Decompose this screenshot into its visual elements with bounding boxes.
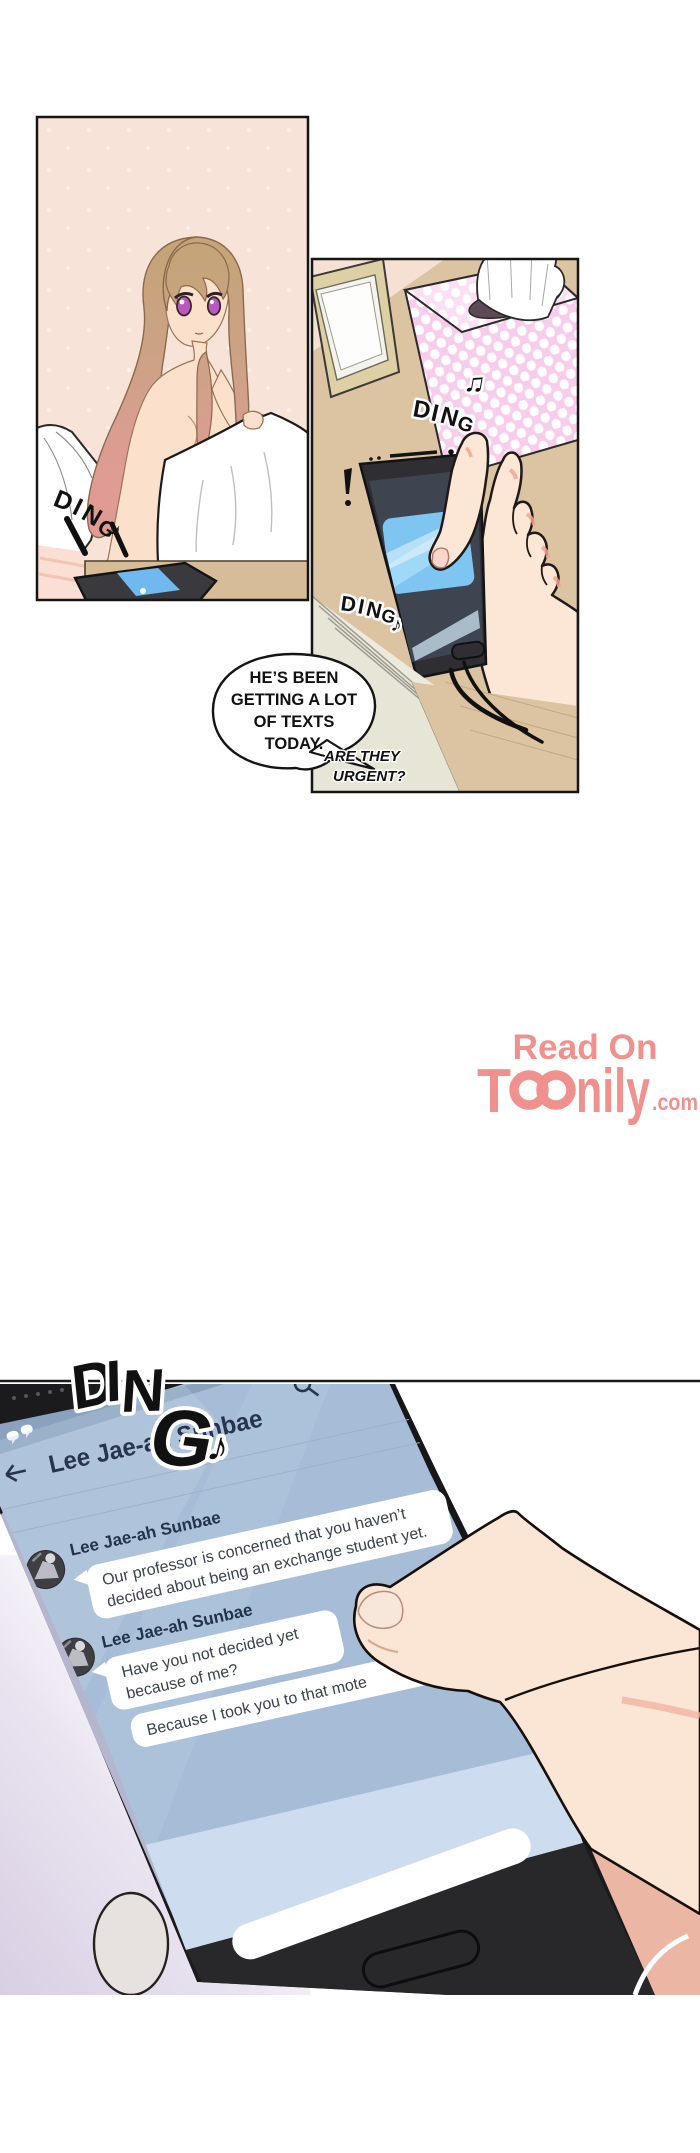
svg-text:nily: nily	[576, 1057, 650, 1126]
svg-text:OF TEXTS: OF TEXTS	[254, 713, 335, 731]
svg-text:TODAY.: TODAY.	[265, 735, 324, 753]
svg-text:D: D	[339, 592, 357, 617]
svg-text:T: T	[477, 1057, 511, 1126]
svg-text:URGENT?: URGENT?	[333, 768, 406, 785]
svg-text:HE’S BEEN: HE’S BEEN	[250, 669, 339, 687]
svg-text:GETTING A LOT: GETTING A LOT	[231, 691, 357, 709]
svg-text:.com: .com	[652, 1089, 698, 1115]
svg-text:ARE THEY: ARE THEY	[323, 748, 402, 765]
